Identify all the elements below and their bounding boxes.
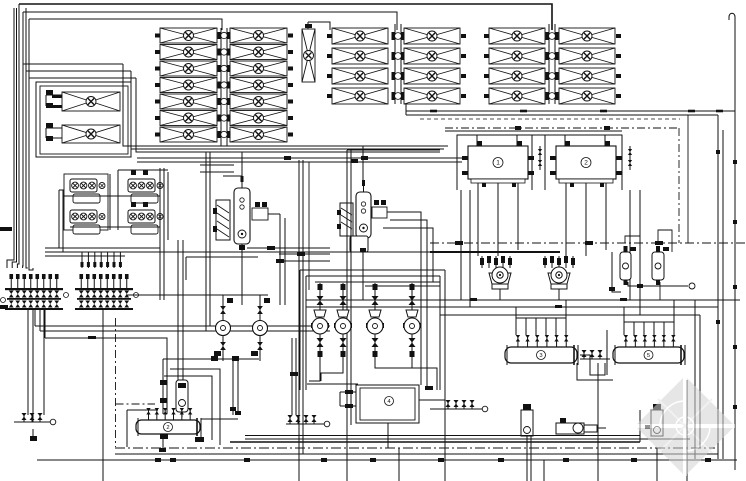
svg-text:2: 2 — [584, 160, 588, 167]
svg-text:1: 1 — [496, 160, 500, 167]
svg-text:5: 5 — [647, 353, 650, 359]
svg-text:2: 2 — [166, 425, 169, 431]
svg-text:3: 3 — [539, 353, 542, 359]
